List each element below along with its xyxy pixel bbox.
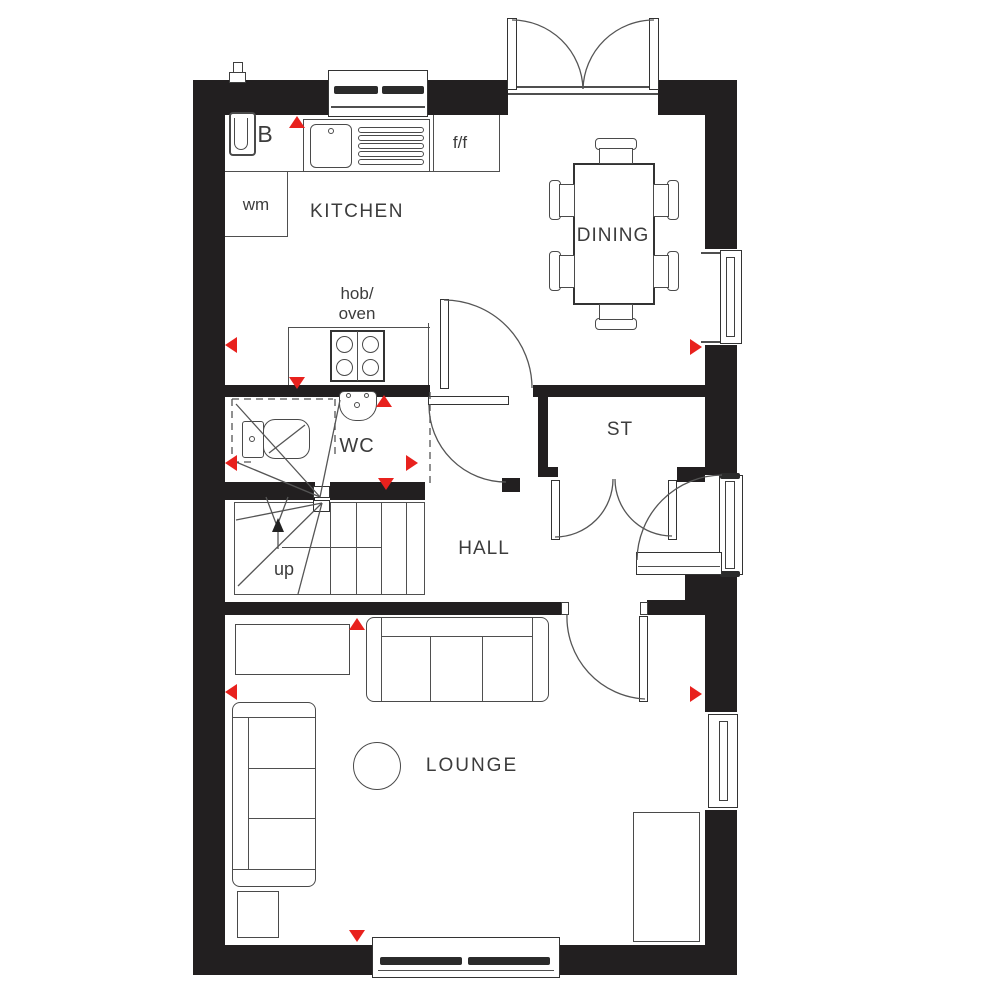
wall-lounge-top-right	[647, 600, 707, 615]
front-door-jamb-top	[720, 473, 740, 479]
counter-edge-right	[499, 115, 500, 172]
sofa-top-cushion-1	[430, 637, 431, 701]
dimension-marker-dining-right	[690, 339, 702, 355]
dining-window-sill-top	[701, 252, 720, 254]
hob-divider	[357, 331, 358, 381]
dimension-marker-wc-top	[376, 395, 392, 407]
wall-left	[193, 80, 225, 975]
dimension-marker-kitchen-left	[225, 337, 237, 353]
stairs-up-label: up	[274, 559, 294, 579]
wall-wc-door-stub	[502, 478, 520, 492]
dining-chair-left2-seat	[559, 255, 575, 288]
stair-tread-2	[356, 503, 357, 594]
dining-chair-top-seat	[599, 148, 633, 164]
st-door-left-leaf	[551, 480, 560, 540]
front-door-frame-inner	[725, 481, 735, 569]
floor-plan: KITCHEN DINING WC HALL ST LOUNGE B f/f w…	[0, 0, 1000, 1000]
front-door-swing-arc	[637, 475, 722, 560]
drainer-bar-2	[358, 135, 424, 141]
flue-vent-base	[229, 72, 246, 83]
dining-chair-right1-seat	[653, 184, 669, 217]
side-table	[237, 891, 279, 938]
wc-label: WC	[339, 436, 374, 456]
wall-top-kitchen	[193, 80, 328, 115]
dimension-marker-wc-bottom	[378, 478, 394, 490]
sofa-top-cushion-2	[482, 637, 483, 701]
drainer-bar-4	[358, 151, 424, 157]
dining-label: DINING	[577, 226, 650, 246]
wc-door-swing-arc	[429, 405, 506, 482]
wall-lounge-top-left	[193, 602, 562, 615]
st-door-right-leaf	[668, 480, 677, 540]
hob-counter-right	[428, 323, 429, 385]
kitchen-window-glazing-right	[382, 86, 424, 94]
stair-tread-1	[330, 503, 331, 594]
coffee-table	[353, 742, 401, 790]
dining-chair-bottom-seat	[599, 304, 633, 320]
toilet-bowl	[263, 419, 310, 459]
sofa-left-back-line	[248, 718, 249, 869]
french-door-right-swing-arc	[583, 20, 654, 89]
dimension-marker-lounge-top	[349, 618, 365, 630]
sofa-left-cushion-2	[249, 818, 315, 819]
sofa-left	[232, 702, 316, 887]
store-label: ST	[607, 420, 633, 440]
sideboard	[235, 624, 350, 675]
wc-door-leaf	[428, 396, 509, 405]
hall-label: HALL	[458, 539, 510, 559]
dimension-marker-lounge-left	[225, 684, 237, 700]
dining-chair-left1-seat	[559, 184, 575, 217]
hob-counter-top	[288, 327, 430, 328]
sofa-left-arm-bottom	[233, 869, 315, 870]
front-door-jamb-bottom	[720, 571, 740, 577]
french-door-left-swing-arc	[512, 20, 583, 89]
wall-spine-st	[533, 385, 705, 397]
french-door-threshold-a	[508, 86, 658, 88]
kitchen-window-glazing-left	[334, 86, 378, 94]
drainer-bar-5	[358, 159, 424, 165]
lounge-bottom-window-glazing-right	[468, 957, 550, 965]
lounge-label: LOUNGE	[426, 756, 518, 776]
dimension-marker-wc-left	[225, 455, 237, 471]
wall-spine-kitchen	[193, 385, 430, 397]
tv-unit	[633, 812, 700, 942]
sofa-top-arm-right	[532, 618, 533, 701]
sofa-left-arm-top	[233, 717, 315, 718]
ff-divider	[433, 115, 434, 172]
lounge-bottom-window-sill	[378, 970, 554, 971]
dimension-marker-lounge-bottom	[349, 930, 365, 942]
wall-bottom-left	[193, 945, 375, 975]
wall-top-right	[658, 80, 737, 115]
wall-st-left	[538, 397, 548, 467]
wall-top-mid	[428, 80, 508, 115]
sofa-top	[366, 617, 549, 702]
wall-right-upper	[705, 115, 737, 250]
st-door-right-swing-arc	[615, 479, 672, 536]
wc-basin-tap-right	[364, 393, 369, 398]
sofa-top-back-line	[382, 636, 532, 637]
french-door-threshold-b	[508, 93, 658, 95]
lounge-bottom-window-glazing-left	[380, 957, 462, 965]
sofa-left-cushion-1	[249, 768, 315, 769]
hob-burner-2	[362, 336, 379, 353]
front-door-leaf-line	[638, 566, 720, 567]
wall-bottom-right	[557, 945, 737, 975]
wc-basin-tap-left	[346, 393, 351, 398]
wm-divider-bottom	[225, 236, 287, 237]
dimension-marker-lounge-right	[690, 686, 702, 702]
kitchen-window-sill	[331, 106, 425, 108]
wall-st-right-stub	[677, 467, 705, 482]
wall-wc-bottom-a	[193, 482, 315, 500]
stair-rail-line	[282, 547, 382, 548]
lounge-door-swing-arc	[567, 614, 645, 699]
lounge-door-leaf	[639, 616, 648, 702]
fridge-freezer-label: f/f	[453, 133, 467, 153]
hob-burner-4	[362, 359, 379, 376]
lounge-door-jamb-left	[561, 602, 569, 615]
kitchen-label: KITCHEN	[310, 202, 404, 222]
wm-divider-right	[287, 172, 288, 237]
drainer-bar-3	[358, 143, 424, 149]
stair-newel-bottom	[313, 500, 330, 512]
stair-tread-4	[406, 503, 407, 594]
kitchen-door-swing-arc	[444, 300, 532, 388]
dimension-marker-wc-right	[406, 455, 418, 471]
wc-basin-drain	[354, 402, 360, 408]
sink-tap	[328, 128, 334, 134]
hob-oven-label: hob/ oven	[339, 284, 376, 324]
front-door-leaf	[636, 552, 722, 575]
stair-newel-top	[313, 486, 330, 498]
washing-machine-label: wm	[243, 195, 269, 215]
drainer-bar-1	[358, 127, 424, 133]
toilet-flush-button	[249, 436, 255, 442]
wall-right-hall	[705, 600, 737, 713]
wall-st-left-foot	[538, 467, 558, 477]
boiler-unit-inner	[234, 118, 248, 150]
wall-right-mid	[705, 345, 737, 475]
dining-window-sill-bottom	[701, 341, 720, 343]
stair-tread-3	[381, 503, 382, 594]
boiler-label: B	[257, 124, 272, 144]
french-door-right-leaf	[649, 18, 659, 90]
french-door-left-leaf	[507, 18, 517, 90]
dining-chair-right2-seat	[653, 255, 669, 288]
sofa-top-arm-left	[381, 618, 382, 701]
hob-burner-1	[336, 336, 353, 353]
dimension-marker-kitchen-bottom	[289, 377, 305, 389]
hob-burner-3	[336, 359, 353, 376]
st-door-left-swing-arc	[555, 479, 613, 537]
dining-window-glazing	[726, 257, 735, 337]
wall-right-entry-stub	[685, 573, 737, 603]
lounge-door-jamb-right	[640, 602, 648, 615]
lounge-right-window-glazing	[719, 721, 728, 801]
kitchen-door-leaf	[440, 299, 449, 389]
dimension-marker-kitchen-top	[289, 116, 305, 128]
